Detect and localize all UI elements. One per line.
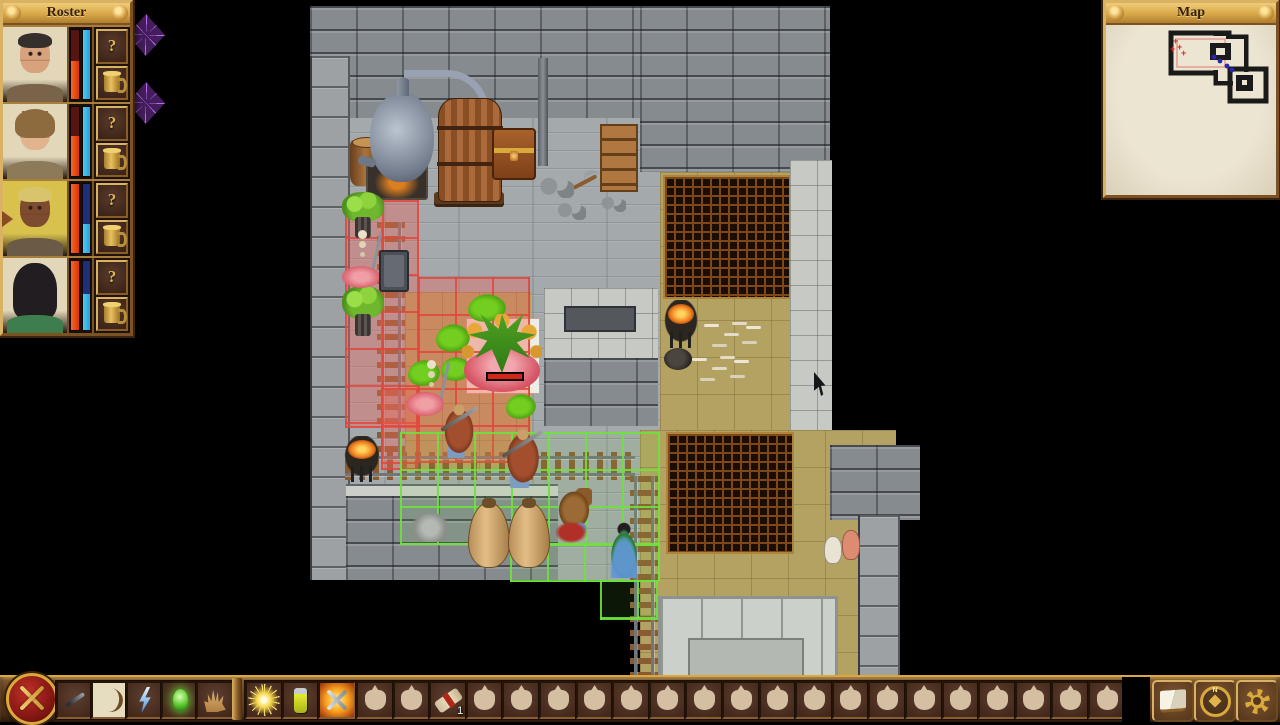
bag-slot-10[interactable] xyxy=(685,681,723,719)
hp-bar-fill xyxy=(71,184,79,253)
dagger-icon xyxy=(62,687,88,713)
question-button-char-1[interactable]: ? xyxy=(96,29,128,64)
mp-bar-fill xyxy=(83,30,91,99)
bag-icon xyxy=(511,690,532,710)
map-title: Map xyxy=(1177,5,1205,21)
hp-bar xyxy=(70,183,80,254)
bag-icon xyxy=(584,690,605,710)
mp-bar-fill xyxy=(83,224,91,253)
mp-bar xyxy=(82,106,92,177)
ent-brick xyxy=(544,358,658,426)
ent-rubble xyxy=(556,198,586,220)
bag-icon xyxy=(694,690,715,710)
ent-shelf xyxy=(600,124,638,192)
ent-lightwall xyxy=(790,160,832,445)
ent-jug-white xyxy=(824,536,842,564)
minimap-party-dot xyxy=(1230,68,1235,73)
loot-hand-slot[interactable] xyxy=(196,681,234,719)
ent-hpbar xyxy=(486,372,524,381)
portrait-face xyxy=(20,36,50,73)
ent-heroine[interactable] xyxy=(604,520,644,578)
mug-button-char-4[interactable] xyxy=(96,297,128,332)
question-mark-label: ? xyxy=(108,113,117,133)
bag-slot-5[interactable] xyxy=(502,681,540,719)
bag-slot-6[interactable] xyxy=(539,681,577,719)
bag-icon xyxy=(767,690,788,710)
bag-icon xyxy=(1060,690,1081,710)
mug-button-char-2[interactable] xyxy=(96,143,128,178)
active-turn-arrow xyxy=(2,211,13,227)
minimap-enemy-mark: + xyxy=(1181,48,1186,58)
ent-bench xyxy=(564,306,636,332)
ent-brick xyxy=(640,6,830,172)
portrait-face xyxy=(20,190,50,227)
scroll-item-slot[interactable]: 1 xyxy=(429,681,467,719)
potion-slot[interactable] xyxy=(282,681,320,719)
hp-bar-fill xyxy=(71,261,79,330)
char-bars-char-1 xyxy=(69,27,94,102)
item-count: 1 xyxy=(457,705,463,717)
roster-row-char-4: ? xyxy=(3,256,130,333)
minimap-party-dot xyxy=(1225,64,1230,69)
char-buttons-char-3: ? xyxy=(94,181,130,256)
ent-grate xyxy=(666,432,794,554)
ent-puddle xyxy=(342,266,380,288)
portrait-shoulders xyxy=(7,84,62,102)
ent-relief xyxy=(404,514,456,542)
flaming-swords-icon xyxy=(323,686,351,714)
bag-icon xyxy=(731,690,752,710)
compass-icon xyxy=(1200,686,1231,717)
ent-chest[interactable] xyxy=(492,128,536,180)
char-buttons-char-1: ? xyxy=(94,27,130,102)
mug-icon xyxy=(104,74,120,92)
minimap-party-dot xyxy=(1218,59,1223,64)
hp-bar-fill xyxy=(71,61,79,99)
ent-mushroom xyxy=(342,286,384,336)
minimap-enemy-mark: + xyxy=(1170,44,1175,54)
mug-button-char-3[interactable] xyxy=(96,220,128,255)
ent-bones xyxy=(688,352,764,386)
minimap-svg: ++++ xyxy=(1106,25,1270,195)
mp-bar xyxy=(82,29,92,100)
bag-slot-13[interactable] xyxy=(795,681,833,719)
mug-button-char-1[interactable] xyxy=(96,66,128,101)
mp-bar xyxy=(82,183,92,254)
ent-remains xyxy=(554,518,592,544)
mp-bar-fill xyxy=(83,107,91,176)
ent-warrior[interactable] xyxy=(502,426,544,488)
ent-pillar xyxy=(538,58,548,166)
bag-icon xyxy=(804,690,825,710)
portrait-shoulders xyxy=(7,161,62,179)
ent-pot xyxy=(664,348,692,370)
bag-icon xyxy=(987,690,1008,710)
bag-slot-16[interactable] xyxy=(905,681,943,719)
bag-icon xyxy=(1023,690,1044,710)
bag-icon xyxy=(914,690,935,710)
bag-slot-14[interactable] xyxy=(832,681,870,719)
ent-rubble xyxy=(600,192,626,212)
hp-bar xyxy=(70,106,80,177)
char-bars-char-3 xyxy=(69,181,94,256)
question-button-char-4[interactable]: ? xyxy=(96,260,128,295)
ranged-weapon-slot[interactable] xyxy=(91,681,129,719)
bag-slot-21[interactable] xyxy=(1088,681,1126,719)
bag-icon xyxy=(401,690,422,710)
ent-plant[interactable] xyxy=(462,314,542,396)
char-bars-char-4 xyxy=(69,258,94,333)
ent-jug-pink xyxy=(842,530,860,560)
ent-bones xyxy=(700,318,764,352)
toolbar-divider xyxy=(232,678,242,720)
portrait-shoulders xyxy=(7,315,62,333)
ent-brazier xyxy=(660,300,702,348)
attack-mode-slot[interactable] xyxy=(318,681,356,719)
ent-brick xyxy=(830,445,920,520)
portrait-char-2[interactable] xyxy=(3,104,69,179)
bag-icon xyxy=(657,690,678,710)
map-panel: Map ++++ xyxy=(1103,0,1279,198)
gear-icon xyxy=(1245,689,1270,714)
ent-rubble xyxy=(538,172,574,198)
spell-lightning-slot[interactable] xyxy=(126,681,164,719)
game-viewport[interactable] xyxy=(0,0,1280,675)
portrait-shoulders xyxy=(7,238,62,256)
portrait-face xyxy=(20,113,50,150)
ent-minecart[interactable] xyxy=(379,250,409,292)
bag-slot-2[interactable] xyxy=(393,681,431,719)
lightning-icon xyxy=(136,687,154,713)
book-icon xyxy=(1160,689,1186,713)
mp-bar-fill xyxy=(83,294,91,330)
ent-puddle xyxy=(406,392,444,416)
portrait-char-1[interactable] xyxy=(3,27,69,102)
bag-icon xyxy=(877,690,898,710)
light-spell-slot[interactable] xyxy=(245,681,283,719)
melee-weapon-slot[interactable] xyxy=(56,681,94,719)
char-buttons-char-4: ? xyxy=(94,258,130,333)
potion-icon xyxy=(294,688,307,713)
question-button-char-2[interactable]: ? xyxy=(96,106,128,141)
gem-icon xyxy=(173,689,188,711)
bag-slot-12[interactable] xyxy=(759,681,797,719)
world-map-button[interactable] xyxy=(1194,680,1236,722)
roster-header: Roster xyxy=(3,3,130,25)
bow-icon xyxy=(95,686,125,714)
roster-row-char-1: ? xyxy=(3,25,130,102)
portrait-char-4[interactable] xyxy=(3,258,69,333)
settings-button[interactable] xyxy=(1236,680,1278,722)
ent-brazier xyxy=(340,436,384,482)
hp-bar xyxy=(70,260,80,331)
toolbar-notch xyxy=(1122,677,1150,722)
bag-icon xyxy=(474,690,495,710)
question-mark-label: ? xyxy=(108,190,117,210)
action-bar: 1 xyxy=(0,675,1280,722)
bag-slot-20[interactable] xyxy=(1051,681,1089,719)
char-bars-char-2 xyxy=(69,104,94,179)
minimap[interactable]: ++++ xyxy=(1106,25,1276,195)
bag-slot-17[interactable] xyxy=(942,681,980,719)
ent-grate xyxy=(663,175,791,299)
roster-title: Roster xyxy=(47,5,87,21)
ent-warrior[interactable] xyxy=(440,402,478,458)
bag-slot-1[interactable] xyxy=(356,681,394,719)
hand-icon xyxy=(203,688,227,712)
mug-icon xyxy=(104,228,120,246)
bag-slot-11[interactable] xyxy=(722,681,760,719)
roster-rows: ???? xyxy=(3,25,130,333)
bag-icon xyxy=(950,690,971,710)
bag-icon xyxy=(365,690,386,710)
question-mark-label: ? xyxy=(108,36,117,56)
bag-icon xyxy=(840,690,861,710)
bag-icon xyxy=(548,690,569,710)
attack-emblem-button[interactable] xyxy=(6,673,58,725)
bag-slot-9[interactable] xyxy=(649,681,687,719)
map-header: Map xyxy=(1106,3,1276,25)
hp-bar-fill xyxy=(71,136,79,176)
bag-slot-15[interactable] xyxy=(868,681,906,719)
spell-gem-slot[interactable] xyxy=(161,681,199,719)
bag-slot-19[interactable] xyxy=(1015,681,1053,719)
bag-slot-18[interactable] xyxy=(978,681,1016,719)
char-buttons-char-2: ? xyxy=(94,104,130,179)
ent-alembic xyxy=(370,92,434,182)
bag-slot-4[interactable] xyxy=(466,681,504,719)
roster-row-char-3: ? xyxy=(3,179,130,256)
bag-slot-8[interactable] xyxy=(612,681,650,719)
roster-panel: Roster ???? xyxy=(0,0,133,336)
mug-icon xyxy=(104,305,120,323)
bag-slot-7[interactable] xyxy=(576,681,614,719)
question-mark-label: ? xyxy=(108,267,117,287)
hp-bar xyxy=(70,29,80,100)
ent-wallcol xyxy=(858,515,900,685)
question-button-char-3[interactable]: ? xyxy=(96,183,128,218)
journal-button[interactable] xyxy=(1152,680,1194,722)
portrait-face xyxy=(20,267,50,304)
minimap-party-dot xyxy=(1212,55,1217,60)
mp-bar xyxy=(82,260,92,331)
sunburst-icon xyxy=(248,684,280,716)
bag-icon xyxy=(1097,690,1118,710)
mug-icon xyxy=(104,151,120,169)
bag-icon xyxy=(621,690,642,710)
roster-row-char-2: ? xyxy=(3,102,130,179)
ent-hl-green xyxy=(600,580,658,620)
